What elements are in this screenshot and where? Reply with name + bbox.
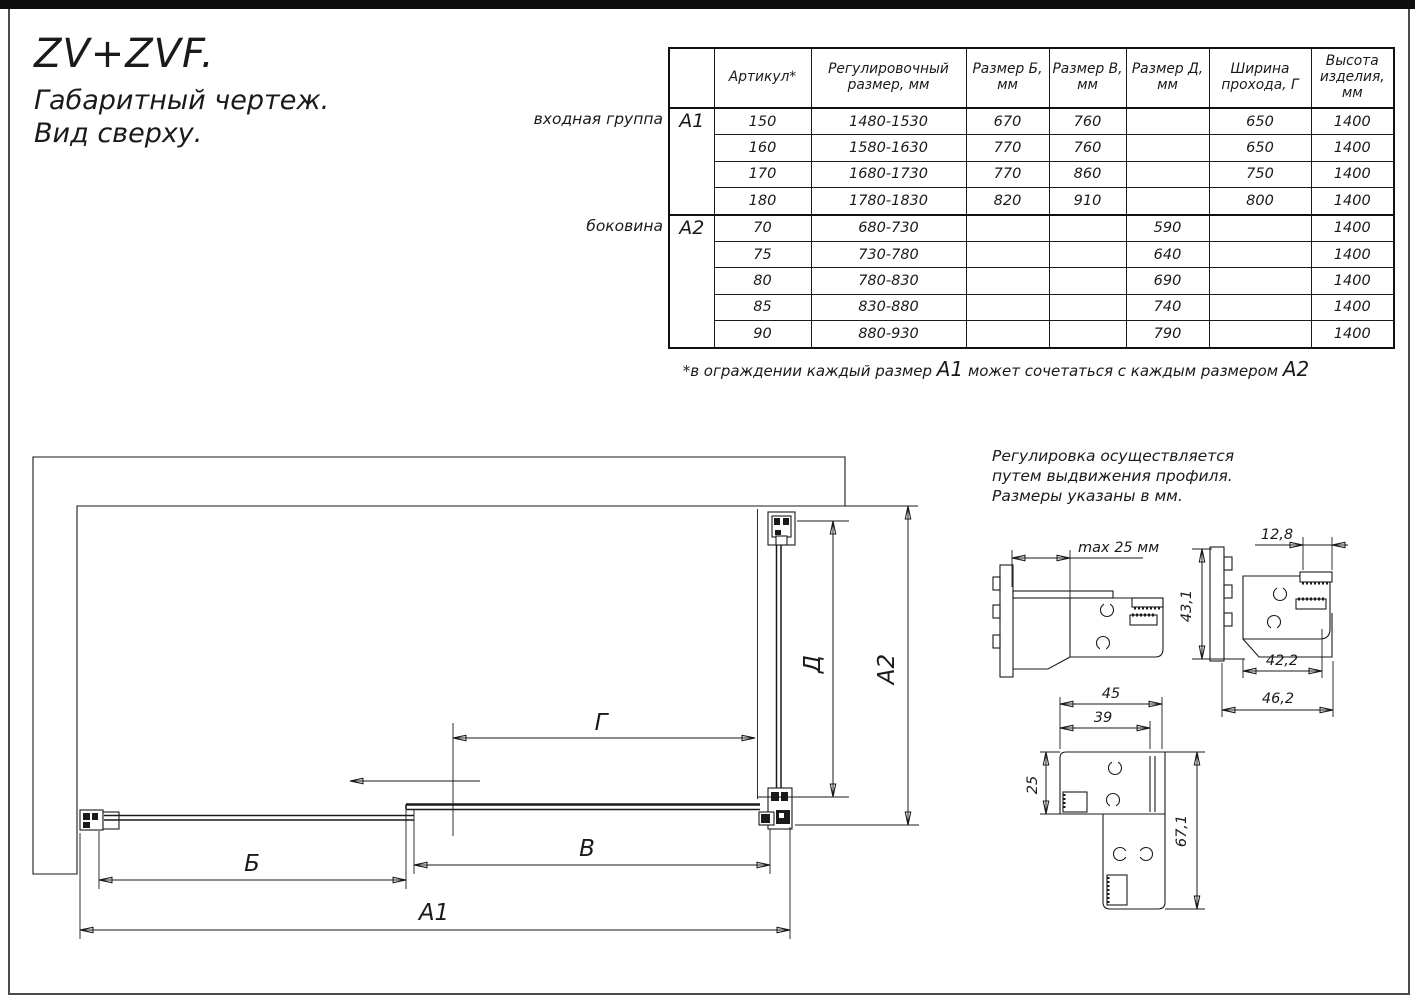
sheet-frame-right [1408,9,1410,995]
table-cell: 85 [714,294,811,320]
group-label-entry: входная группа [438,110,663,128]
table-cell [966,294,1049,320]
page-subtitle-1: Габаритный чертеж. [34,85,329,116]
table-cell [1049,321,1126,348]
sizes-table: Артикул* Регулировочный размер, мм Разме… [668,47,1395,349]
col-header-size-v: Размер В, мм [1049,48,1126,108]
table-cell [966,215,1049,242]
dim-label-d: Д [800,655,826,674]
table-cell: 910 [1049,188,1126,215]
table-cell: 75 [714,241,811,267]
dim-d: Д [757,521,849,797]
table-cell: 780-830 [811,268,966,294]
table-cell: 680-730 [811,215,966,242]
col-header-height: Высота изделия, мм [1311,48,1394,108]
table-cell [1209,268,1311,294]
dim-label-67-1: 67,1 [1174,815,1190,847]
table-cell: 670 [966,108,1049,135]
col-header-article: Артикул* [714,48,811,108]
footnote-a1: А1 [937,357,963,381]
detail-corner-profile: 45 39 25 67 [1025,686,1205,909]
col-header-size-b: Размер Б, мм [966,48,1049,108]
table-cell [1049,241,1126,267]
footnote-a2: А2 [1283,357,1309,381]
dim-label-b: Б [244,851,260,877]
dim-a1: А1 [80,827,790,939]
dim-label-a2: А2 [874,654,900,686]
table-corner-cell [669,48,714,108]
table-cell [966,321,1049,348]
table-row: 85 830-880 740 1400 [669,294,1394,320]
table-cell [966,241,1049,267]
dim-g: Г [453,710,755,836]
dim-v: В [414,810,770,874]
table-cell: 790 [1126,321,1209,348]
table-cell: 150 [714,108,811,135]
table-row: 90 880-930 790 1400 [669,321,1394,348]
table-cell: 1400 [1311,135,1394,161]
table-cell: 590 [1126,215,1209,242]
table-cell [1049,215,1126,242]
table-cell: 1400 [1311,321,1394,348]
table-cell [1126,188,1209,215]
table-cell: 650 [1209,135,1311,161]
table-cell: 80 [714,268,811,294]
dim-label-a1: А1 [417,900,449,926]
dim-label-max25: max 25 мм [1078,540,1159,556]
table-row: А2 70 680-730 590 1400 [669,215,1394,242]
sheet-frame-left [8,9,10,995]
table-cell: 750 [1209,161,1311,187]
adjustment-note: Регулировка осуществляется путем выдвиже… [992,446,1234,506]
sheet-frame-bottom [8,993,1410,995]
table-cell: 1400 [1311,108,1394,135]
table-cell [1126,135,1209,161]
detail-wall-profile: max 25 мм [993,540,1163,677]
table-cell: 640 [1126,241,1209,267]
page-subtitle-2: Вид сверху. [34,118,202,149]
table-row: 160 1580-1630 770 760 650 1400 [669,135,1394,161]
table-cell: 650 [1209,108,1311,135]
group-key-a2: А2 [669,215,714,348]
note-line-2: путем выдвижения профиля. [992,466,1234,486]
table-cell: 760 [1049,108,1126,135]
table-row: 80 780-830 690 1400 [669,268,1394,294]
dim-label-g: Г [595,710,610,736]
side-panel [758,509,796,803]
table-cell: 1400 [1311,294,1394,320]
footnote-text: может сочетаться с каждым размером [963,362,1283,380]
group-label-side: боковина [438,217,663,235]
table-cell: 1480-1530 [811,108,966,135]
fixed-panel [80,810,414,830]
table-cell: 730-780 [811,241,966,267]
page-title: ZV+ZVF. [34,31,215,77]
table-cell: 880-930 [811,321,966,348]
sliding-door [350,781,760,810]
dim-label-39: 39 [1094,710,1112,726]
dim-label-12-8: 12,8 [1261,527,1293,543]
table-cell [1049,268,1126,294]
table-cell [1049,294,1126,320]
table-cell: 70 [714,215,811,242]
detail-side-profile: 12,8 43,1 42,2 46,2 [1179,527,1348,717]
table-cell: 1400 [1311,188,1394,215]
note-line-1: Регулировка осуществляется [992,446,1234,466]
table-row: 170 1680-1730 770 860 750 1400 [669,161,1394,187]
table-cell [1209,215,1311,242]
table-cell: 800 [1209,188,1311,215]
table-cell: 170 [714,161,811,187]
col-header-pass-width: Ширина прохода, Г [1209,48,1311,108]
drawing-sheet: Г Д А2 Б В А1 [0,0,1415,1000]
table-cell: 1680-1730 [811,161,966,187]
note-line-3: Размеры указаны в мм. [992,486,1234,506]
group-key-a1: А1 [669,108,714,215]
table-cell: 760 [1049,135,1126,161]
table-cell [1126,161,1209,187]
footnote-text: *в ограждении каждый размер [683,362,937,380]
table-cell [1126,108,1209,135]
table-cell: 1400 [1311,241,1394,267]
table-cell: 740 [1126,294,1209,320]
table-cell: 690 [1126,268,1209,294]
table-cell: 820 [966,188,1049,215]
table-footnote: *в ограждении каждый размер А1 может соч… [640,357,1352,381]
dim-label-45: 45 [1102,686,1120,702]
col-header-adjust-size: Регулировочный размер, мм [811,48,966,108]
table-cell: 90 [714,321,811,348]
table-cell: 1580-1630 [811,135,966,161]
col-header-size-d: Размер Д, мм [1126,48,1209,108]
table-cell: 180 [714,188,811,215]
table-cell [1209,241,1311,267]
table-cell: 1400 [1311,215,1394,242]
table-cell: 1400 [1311,268,1394,294]
table-cell: 830-880 [811,294,966,320]
table-row: 180 1780-1830 820 910 800 1400 [669,188,1394,215]
table-cell: 860 [1049,161,1126,187]
dim-label-v: В [579,836,595,862]
dim-b: Б [99,810,406,889]
dim-label-25: 25 [1025,776,1041,794]
dim-label-42-2: 42,2 [1266,653,1298,669]
table-row: А1 150 1480-1530 670 760 650 1400 [669,108,1394,135]
table-cell: 1400 [1311,161,1394,187]
table-cell: 770 [966,135,1049,161]
table-cell [1209,321,1311,348]
table-cell: 1780-1830 [811,188,966,215]
dim-label-43-1: 43,1 [1179,590,1195,622]
table-row: 75 730-780 640 1400 [669,241,1394,267]
table-cell [966,268,1049,294]
dim-label-46-2: 46,2 [1262,691,1294,707]
corner-profile [759,788,792,829]
table-cell: 160 [714,135,811,161]
table-cell [1209,294,1311,320]
table-cell: 770 [966,161,1049,187]
